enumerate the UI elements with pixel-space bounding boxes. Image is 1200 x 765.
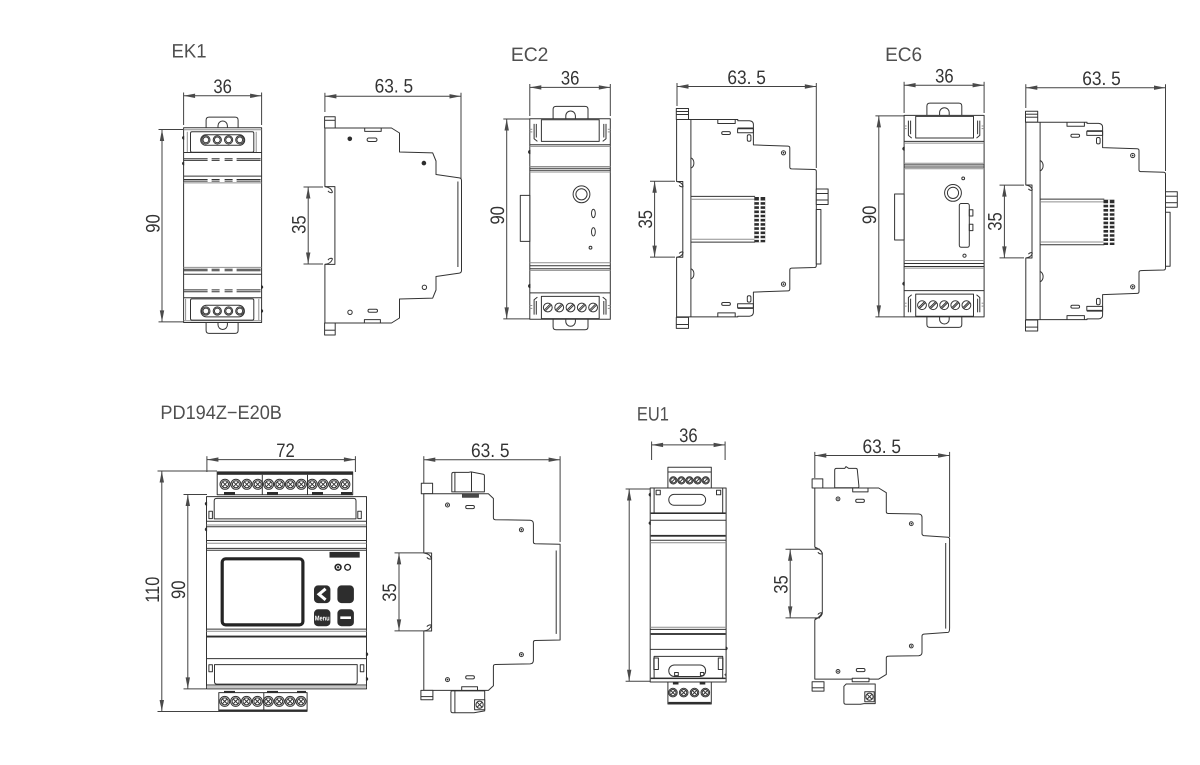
svg-text:90: 90 — [487, 206, 509, 225]
svg-text:35: 35 — [985, 212, 1007, 231]
svg-text:36: 36 — [213, 76, 232, 98]
svg-text:90: 90 — [859, 206, 881, 225]
svg-text:EU1: EU1 — [637, 404, 669, 426]
svg-text:35: 35 — [379, 583, 401, 602]
svg-text:90: 90 — [168, 580, 190, 599]
svg-text:EK1: EK1 — [172, 40, 207, 62]
svg-text:35: 35 — [635, 210, 657, 229]
svg-text:72: 72 — [276, 440, 295, 462]
svg-text:35: 35 — [288, 215, 310, 234]
svg-text:63. 5: 63. 5 — [471, 440, 510, 462]
svg-text:36: 36 — [679, 425, 698, 447]
svg-text:110: 110 — [142, 577, 164, 603]
svg-text:63. 5: 63. 5 — [1082, 68, 1121, 90]
svg-text:63. 5: 63. 5 — [863, 436, 902, 458]
svg-text:Menu: Menu — [315, 615, 330, 622]
svg-text:36: 36 — [935, 66, 954, 88]
svg-text:90: 90 — [142, 214, 164, 233]
svg-text:EC2: EC2 — [511, 44, 549, 66]
svg-text:35: 35 — [770, 575, 792, 594]
svg-text:63. 5: 63. 5 — [375, 76, 414, 98]
svg-text:36: 36 — [561, 68, 580, 90]
svg-text:63. 5: 63. 5 — [727, 67, 766, 89]
svg-text:EC6: EC6 — [885, 44, 922, 66]
svg-text:PD194Z−E20B: PD194Z−E20B — [160, 402, 282, 424]
